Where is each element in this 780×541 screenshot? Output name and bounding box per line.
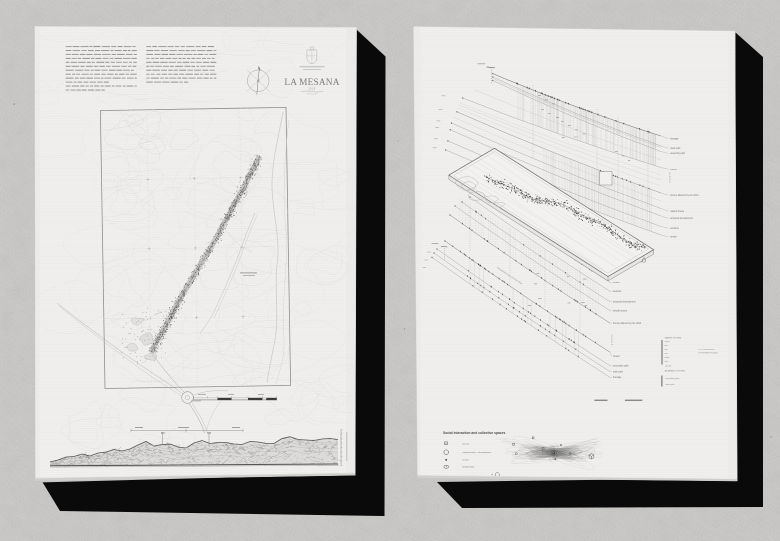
svg-text:FOR EVERY HOUSE: FOR EVERY HOUSE bbox=[699, 352, 719, 354]
svg-text:natural house: natural house bbox=[670, 210, 685, 213]
svg-text:main path: main path bbox=[670, 147, 681, 150]
svg-text:football field: football field bbox=[462, 466, 474, 469]
svg-text:Social interaction and collect: Social interaction and collective spaces bbox=[443, 431, 505, 435]
svg-text:frontage: frontage bbox=[670, 137, 679, 140]
svg-text:secondary path: secondary path bbox=[613, 365, 629, 368]
svg-text:homes affected by fire 2014: homes affected by fire 2014 bbox=[670, 194, 699, 197]
svg-text:secondary path: secondary path bbox=[665, 377, 680, 380]
svg-text:30 m: 30 m bbox=[574, 137, 579, 139]
svg-text:compensation + development: compensation + development bbox=[462, 451, 491, 454]
svg-text:sections: sections bbox=[670, 227, 679, 230]
svg-text:temporal development: temporal development bbox=[613, 301, 636, 304]
svg-text:main path: main path bbox=[665, 383, 675, 386]
svg-text:temporal development: temporal development bbox=[670, 217, 693, 220]
svg-text:2019: 2019 bbox=[309, 87, 316, 90]
svg-text:terrain: terrain bbox=[670, 236, 677, 239]
svg-text:ASSEMBLY SYSTEM: ASSEMBLY SYSTEM bbox=[665, 369, 685, 372]
svg-text:sections: sections bbox=[613, 290, 622, 293]
svg-text:closed: closed bbox=[665, 365, 672, 367]
svg-text:IF CONCERNING: IF CONCERNING bbox=[699, 349, 715, 351]
svg-text:frontage: frontage bbox=[613, 376, 622, 379]
svg-text:WATER SYSTEM: WATER SYSTEM bbox=[665, 336, 682, 339]
svg-text:closed: closed bbox=[613, 282, 620, 284]
svg-text:main path: main path bbox=[613, 370, 624, 373]
svg-text:spaces: spaces bbox=[462, 443, 470, 445]
svg-text:homes affected by fire 2014: homes affected by fire 2014 bbox=[613, 322, 642, 325]
svg-text:assembly path: assembly path bbox=[670, 152, 686, 155]
svg-text:closed: closed bbox=[670, 169, 677, 171]
svg-text:closed: closed bbox=[613, 356, 620, 358]
svg-text:virtual houses: virtual houses bbox=[613, 310, 628, 313]
svg-text:church: church bbox=[462, 459, 469, 462]
